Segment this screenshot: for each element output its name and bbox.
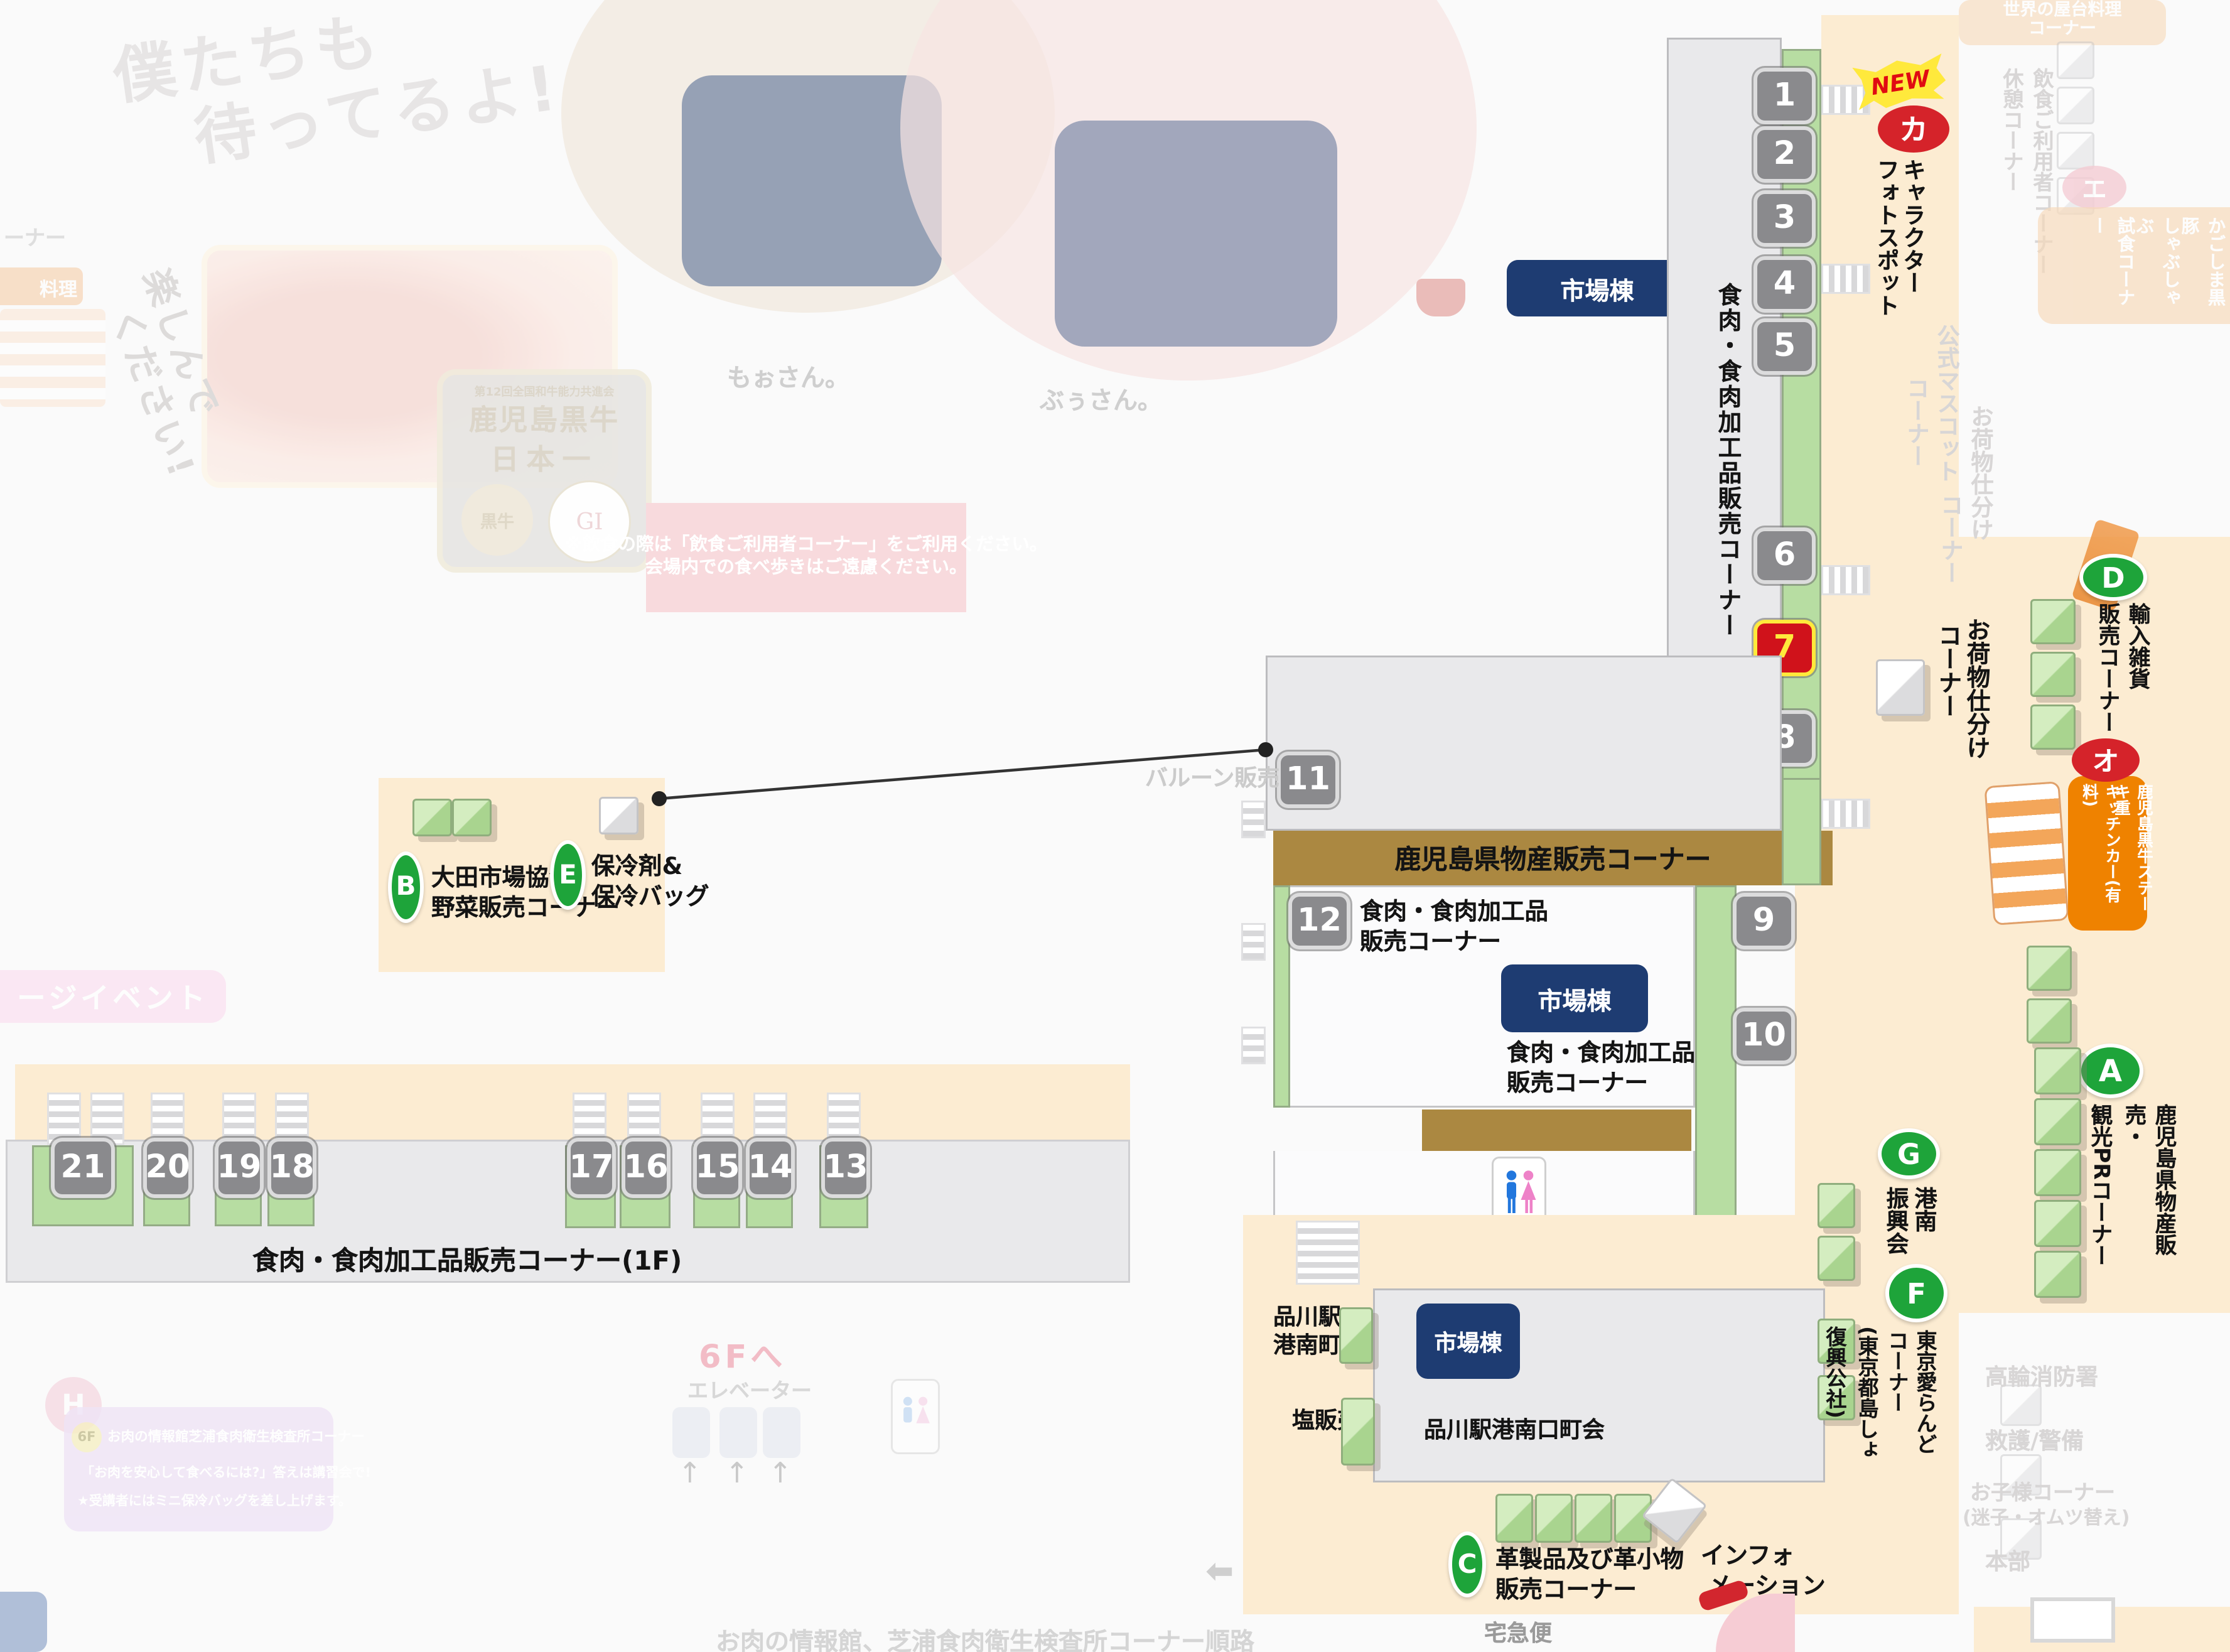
f-corner-col1: 東京愛らんど [1910, 1330, 1940, 1488]
salt-tent-icon [1341, 1398, 1375, 1466]
fire-dept-label: 高輪消防署 [1985, 1360, 2098, 1392]
market-label-text: 市場棟 [1538, 981, 1611, 1017]
cut-corner-label: ーナー [4, 222, 66, 252]
booth-badge-4: 4 [1753, 256, 1816, 313]
e-line1: 保冷剤& [591, 851, 709, 881]
stairs-icon [1821, 264, 1870, 294]
pig-teacup-icon [1416, 279, 1465, 316]
elevator-box [763, 1407, 800, 1458]
notice-line2: 会場内での食べ歩きはご遠慮ください。 [645, 558, 967, 580]
edge-tent-icon [1818, 1236, 1855, 1281]
rest-tent-icon [2057, 132, 2094, 170]
o-kitchen-col2: キッチンカー(有料) [2077, 784, 2123, 923]
floor6-badge: 6F [72, 1422, 102, 1452]
d-tent-icon [2030, 652, 2076, 697]
booth-badge-21: 21 [51, 1138, 115, 1198]
a-tent-icon [2034, 1047, 2081, 1094]
luggage-corner-col2: コーナー [1931, 624, 1966, 733]
g-corner-col2: 振興会 [1882, 1187, 1914, 1277]
edge-tent-icon [1818, 1183, 1855, 1228]
d-tent-icon [2030, 705, 2076, 750]
meat10-line2: 販売コーナー [1507, 1067, 1695, 1097]
rest-tent-icon [2057, 41, 2094, 79]
toilet-glyphs [898, 1392, 932, 1441]
kitchen-truck-icon [1984, 781, 2069, 926]
booth-badge-15: 15 [693, 1138, 742, 1198]
o-kitchen-box: 鹿児島黒牛ステーキ重 キッチンカー(有料) [2068, 776, 2147, 931]
booth-badge-6: 6 [1753, 527, 1816, 584]
c-tent-icon [1535, 1494, 1573, 1543]
notice-line1: ※飲食の際は「飲食ご利用者コーナー」をご利用ください。 [565, 535, 1048, 558]
meat-1f-label: 食肉・食肉加工品販売コーナー(1F) [252, 1241, 682, 1279]
pig-name-label: ぶぅさん。 [1040, 381, 1162, 416]
townhall-tent-icon [1339, 1307, 1373, 1364]
eating-notice-box: ※飲食の際は「飲食ご利用者コーナー」をご利用ください。 会場内での食べ歩きはご遠… [646, 503, 966, 612]
up-arrow-icon: ↑ [678, 1456, 702, 1490]
world-food-line1: 世界の屋台料理 [2003, 4, 2121, 23]
g-letter: G [1897, 1137, 1920, 1171]
gi-mark-text: GI [576, 509, 603, 535]
a-letter: A [2099, 1053, 2122, 1089]
balloon-sale-label: バルーン販売 [1145, 761, 1279, 793]
tent-icon [2027, 946, 2072, 991]
booth-badge-13: 13 [821, 1138, 870, 1198]
e-line2: 保冷バッグ [591, 881, 709, 910]
badge-main1-text: 鹿児島黒牛 [443, 399, 646, 439]
elevator-box [672, 1407, 710, 1458]
a-corner-col2: 観光PRコーナー [2087, 1104, 2117, 1292]
o-letter: オ [2093, 742, 2119, 779]
rescue-security-label: 救護/警備 [1985, 1424, 2084, 1456]
f-corner-badge: F [1885, 1264, 1947, 1322]
booth-badge-5: 5 [1753, 318, 1816, 375]
stage-event-label: ージイベント [17, 977, 208, 1017]
ka-corner-badge: カ [1878, 105, 1949, 153]
info6f-line2: ★受講者にはミニ保冷バッグを差し上げます。 [77, 1492, 352, 1511]
booth-badge-12: 12 [1288, 893, 1350, 949]
meat12-line2: 販売コーナー [1360, 926, 1548, 956]
stairs-icon [1241, 801, 1266, 838]
market-label-text: 市場棟 [1434, 1325, 1502, 1358]
f-letter: F [1907, 1277, 1926, 1310]
blue-box [0, 1592, 47, 1652]
market-building-upper [1266, 656, 1782, 831]
green-strip-right-lower [1695, 885, 1737, 1230]
rest-tent-icon [2057, 87, 2094, 124]
world-food-box: 世界の屋台料理 コーナー [1959, 0, 2166, 45]
up-arrow-icon: ↑ [768, 1456, 792, 1490]
market-building-label-lower: 市場棟 [1416, 1304, 1520, 1379]
world-food-line2: コーナー [2028, 23, 2096, 41]
brown-bar-2 [1422, 1109, 1691, 1151]
e-corner-badge: E [550, 840, 586, 910]
g-corner-col1: 港南 [1910, 1187, 1942, 1251]
e-katakana-badge: エ [2062, 166, 2126, 209]
b-letter: B [396, 872, 416, 902]
g-corner-badge: G [1878, 1128, 1940, 1179]
mascot-speech-text: 僕たちも 待ってるよ! [109, 0, 566, 184]
shinagawa-south-label: 品川駅港南口町会 [1424, 1413, 1605, 1445]
meat10-line1: 食肉・食肉加工品 [1507, 1038, 1695, 1067]
luggage-faded-col2: コーナー [1936, 494, 1968, 591]
elevator-label: エレベーター [687, 1375, 812, 1405]
kurobuta-col3: 試食コーナー [2083, 217, 2136, 318]
striped-stall-icon [0, 309, 105, 407]
a-corner-badge: A [2077, 1044, 2143, 1098]
market-building-label-mid: 市場棟 [1501, 964, 1648, 1032]
a-tent-icon [2034, 1149, 2081, 1196]
ryori-label-box: 料理 [0, 267, 83, 305]
toilet-icon-faded [891, 1379, 940, 1454]
booth-badge-1: 1 [1753, 68, 1816, 124]
ryori-label: 料理 [40, 273, 77, 301]
cow-name-label: もぉさん。 [727, 358, 849, 394]
a-tent-icon [2034, 1200, 2081, 1247]
c-corner-badge: C [1448, 1531, 1486, 1597]
c-line2: 販売コーナー [1495, 1574, 1684, 1604]
e-letter: E [559, 860, 577, 890]
a-tent-icon [2034, 1251, 2081, 1298]
cow-logo-text: 黒牛 [480, 508, 514, 532]
green-strip-mid [1782, 778, 1821, 885]
event-floor-map: 僕たちも 待ってるよ! もぉさん。 ぶぅさん。 ーナー 料理 第12回全国和牛能… [0, 0, 2230, 1652]
kurobuta-tasting-box: かごしま黒豚 しゃぶしゃぶ 試食コーナー [2038, 207, 2230, 324]
e-tent-icon [599, 797, 638, 834]
f-corner-col3: (東京都島しょ [1851, 1326, 1882, 1537]
green-sliver-left [1273, 885, 1290, 1108]
hq-label: 本部 [1985, 1545, 2030, 1577]
d-corner-col2: 販売コーナー [2094, 603, 2125, 735]
a-corner-col1: 鹿児島県物産販売・ [2121, 1104, 2181, 1292]
luggage-faded-col1: お荷物仕分け [1966, 405, 1998, 578]
b-tent-icon [452, 799, 492, 836]
left-arrow-icon: ⬅ [1205, 1552, 1234, 1592]
a-tent-icon [2034, 1098, 2081, 1145]
b-tent-icon [412, 799, 452, 836]
booth-badge-16: 16 [622, 1138, 671, 1198]
c-tent-icon [1495, 1494, 1533, 1543]
booth-badge-17: 17 [567, 1138, 616, 1198]
meat12-line1: 食肉・食肉加工品 [1360, 897, 1548, 926]
info6f-box: 6F お肉の情報館芝浦食肉衛生検査所コーナー 「お肉を安心して食べるには?」答え… [64, 1407, 333, 1531]
f-corner-col2: コーナー [1882, 1330, 1912, 1443]
info-line1: インフォ [1701, 1541, 1826, 1570]
booth-badge-14: 14 [746, 1138, 795, 1198]
staircase-icon [1296, 1221, 1360, 1285]
meat10-label: 食肉・食肉加工品 販売コーナー [1507, 1038, 1695, 1097]
booth-badge-3: 3 [1753, 190, 1816, 247]
info6f-title: お肉の情報館芝浦食肉衛生検査所コーナー [107, 1428, 365, 1447]
kids-corner-label2: (迷子・オムツ替え) [1963, 1501, 2130, 1530]
stairs-icon [1241, 1027, 1266, 1064]
route-caption: お肉の情報館、芝浦食肉衛生検査所コーナー順路 [716, 1622, 1254, 1652]
official-mascot-col2: コーナー [1902, 377, 1934, 494]
c-letter: C [1458, 1550, 1477, 1580]
toilet-glyphs [1500, 1168, 1538, 1217]
tent-icon [2027, 998, 2072, 1044]
booth-badge-9: 9 [1733, 893, 1795, 949]
stairs-icon [1821, 565, 1870, 595]
floor6-text: 6F [78, 1430, 96, 1445]
kagoshima-products-bar: 鹿児島県物産販売コーナー [1273, 831, 1833, 885]
stairs-icon [1241, 923, 1266, 961]
d-corner-badge: D [2079, 554, 2147, 601]
b-corner-badge: B [388, 851, 424, 923]
meat-corner-vertical-label: 食肉・食肉加工品販売コーナー [1710, 283, 1746, 659]
booth-badge-10: 10 [1733, 1008, 1795, 1064]
info6f-line1: 「お肉を安心して食べるには?」答えは講習会で! [81, 1464, 371, 1482]
booth-badge-11: 11 [1277, 752, 1339, 808]
c-line1: 革製品及び革小物 [1495, 1545, 1684, 1574]
badge-top-text: 第12回全国和牛能力共進会 [443, 382, 646, 399]
d-letter: D [2101, 561, 2125, 595]
market-label-text: 市場棟 [1560, 271, 1634, 306]
market-building-label-top: 市場棟 [1507, 260, 1688, 316]
hq-booth-outline [2030, 1597, 2115, 1643]
booth-badge-18: 18 [267, 1138, 316, 1198]
badge-main2-text: 日本一 [443, 439, 646, 478]
booth-badge-2: 2 [1753, 126, 1816, 183]
ka-letter: カ [1899, 109, 1927, 149]
photo-spot-col2: フォトスポット [1872, 158, 1904, 320]
kurobuta-col2: しゃぶしゃぶ [2128, 217, 2181, 318]
e-corner-label: 保冷剤& 保冷バッグ [591, 851, 709, 910]
rest-corner-label: 休憩コーナー [1996, 68, 2027, 203]
kurobuta-col1: かごしま黒豚 [2173, 217, 2226, 318]
pig-mascot-bib [1055, 121, 1337, 347]
stage-event-box: ージイベント [0, 970, 226, 1023]
booth-badge-20: 20 [143, 1138, 192, 1198]
c-tent-icon [1575, 1494, 1612, 1543]
cow-logo-circle: 黒牛 [461, 484, 533, 556]
official-mascot-col1: 公式マスコット [1932, 324, 1964, 497]
booth-badge-19: 19 [215, 1138, 264, 1198]
stairs-icon [1821, 799, 1870, 829]
meat12-label: 食肉・食肉加工品 販売コーナー [1360, 897, 1548, 956]
up-arrow-icon: ↑ [725, 1456, 749, 1490]
e-katakana-letter: エ [2082, 170, 2106, 205]
d-corner-col1: 輸入雑貨 [2125, 603, 2155, 708]
c-corner-label: 革製品及び革小物 販売コーナー [1495, 1545, 1684, 1604]
takkyubin-label: 宅急便 [1484, 1616, 1552, 1648]
luggage-tent-icon [1876, 659, 1925, 716]
o-corner-badge: オ [2072, 738, 2140, 782]
to-6f-label: 6Fへ [699, 1330, 786, 1377]
elevator-box [719, 1407, 757, 1458]
d-tent-icon [2030, 599, 2076, 644]
f-corner-col4: 復興公社) [1819, 1326, 1850, 1511]
kagoshima-bar-label: 鹿児島県物産販売コーナー [1395, 839, 1711, 877]
